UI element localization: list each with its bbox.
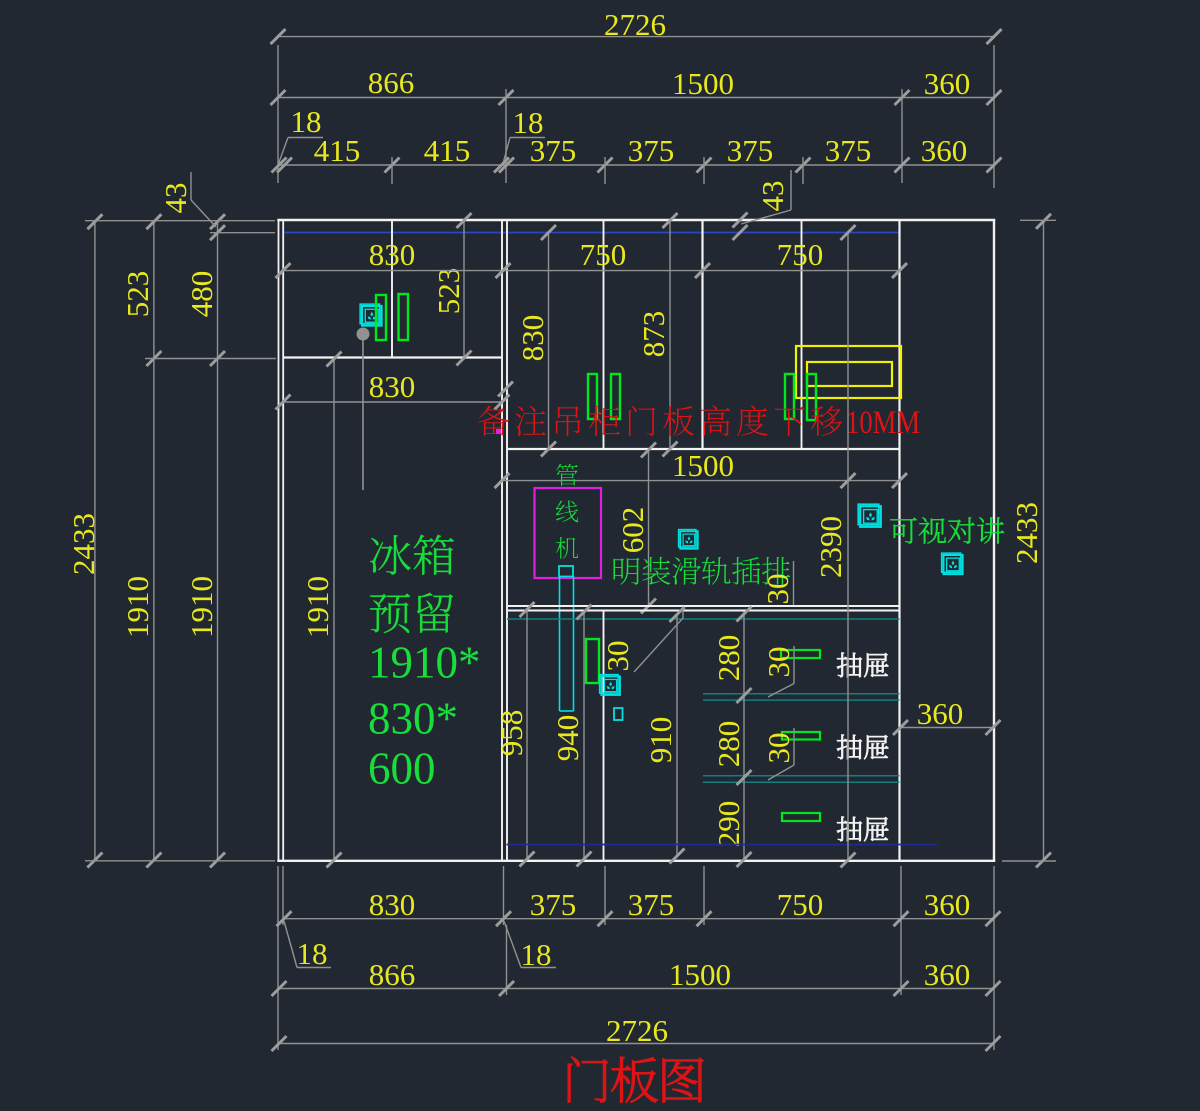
svg-text:602: 602 bbox=[615, 507, 650, 554]
svg-text:2433: 2433 bbox=[66, 513, 101, 575]
svg-text:2433: 2433 bbox=[1009, 502, 1044, 564]
svg-text:375: 375 bbox=[530, 133, 577, 168]
svg-text:375: 375 bbox=[825, 133, 872, 168]
svg-text:375: 375 bbox=[727, 133, 774, 168]
svg-text:958: 958 bbox=[494, 710, 529, 757]
svg-text:600: 600 bbox=[368, 744, 436, 794]
svg-text:750: 750 bbox=[777, 237, 824, 272]
svg-text:1910: 1910 bbox=[300, 576, 335, 638]
svg-text:280: 280 bbox=[711, 721, 746, 768]
svg-text:2390: 2390 bbox=[813, 516, 848, 578]
svg-text:30: 30 bbox=[600, 641, 635, 672]
svg-text:866: 866 bbox=[368, 65, 415, 100]
svg-text:1500: 1500 bbox=[672, 448, 734, 483]
svg-text:2726: 2726 bbox=[604, 7, 666, 42]
svg-text:830: 830 bbox=[369, 369, 416, 404]
svg-text:360: 360 bbox=[921, 133, 968, 168]
svg-text:375: 375 bbox=[628, 887, 675, 922]
svg-text:2726: 2726 bbox=[606, 1013, 668, 1048]
svg-text:1910: 1910 bbox=[120, 576, 155, 638]
svg-text:360: 360 bbox=[924, 887, 971, 922]
svg-text:750: 750 bbox=[777, 887, 824, 922]
svg-text:750: 750 bbox=[580, 237, 627, 272]
svg-text:30: 30 bbox=[760, 574, 795, 605]
svg-text:1500: 1500 bbox=[669, 957, 731, 992]
svg-text:480: 480 bbox=[184, 271, 219, 318]
svg-text:360: 360 bbox=[924, 957, 971, 992]
svg-text:360: 360 bbox=[917, 696, 964, 731]
svg-text:290: 290 bbox=[711, 801, 746, 848]
svg-text:1910*: 1910* bbox=[368, 638, 481, 688]
svg-text:10MM: 10MM bbox=[846, 405, 920, 441]
svg-text:375: 375 bbox=[628, 133, 675, 168]
svg-text:830: 830 bbox=[369, 237, 416, 272]
svg-text:1910: 1910 bbox=[184, 576, 219, 638]
svg-text:415: 415 bbox=[424, 133, 471, 168]
svg-text:910: 910 bbox=[643, 717, 678, 764]
svg-text:866: 866 bbox=[369, 957, 416, 992]
svg-text:523: 523 bbox=[120, 271, 155, 318]
svg-text:280: 280 bbox=[711, 635, 746, 682]
svg-text:360: 360 bbox=[924, 66, 971, 101]
svg-text:873: 873 bbox=[636, 311, 671, 358]
svg-text:375: 375 bbox=[530, 887, 577, 922]
svg-text:415: 415 bbox=[314, 133, 361, 168]
svg-text:523: 523 bbox=[431, 268, 466, 315]
svg-text:30: 30 bbox=[761, 647, 796, 678]
svg-text:940: 940 bbox=[550, 715, 585, 762]
svg-text:1500: 1500 bbox=[672, 66, 734, 101]
svg-text:43: 43 bbox=[755, 181, 790, 212]
svg-text:830: 830 bbox=[515, 315, 550, 362]
svg-text:30: 30 bbox=[761, 733, 796, 764]
svg-text:830*: 830* bbox=[368, 694, 458, 744]
svg-text:18: 18 bbox=[297, 936, 328, 971]
svg-text:43: 43 bbox=[158, 183, 193, 214]
svg-text:830: 830 bbox=[369, 887, 416, 922]
